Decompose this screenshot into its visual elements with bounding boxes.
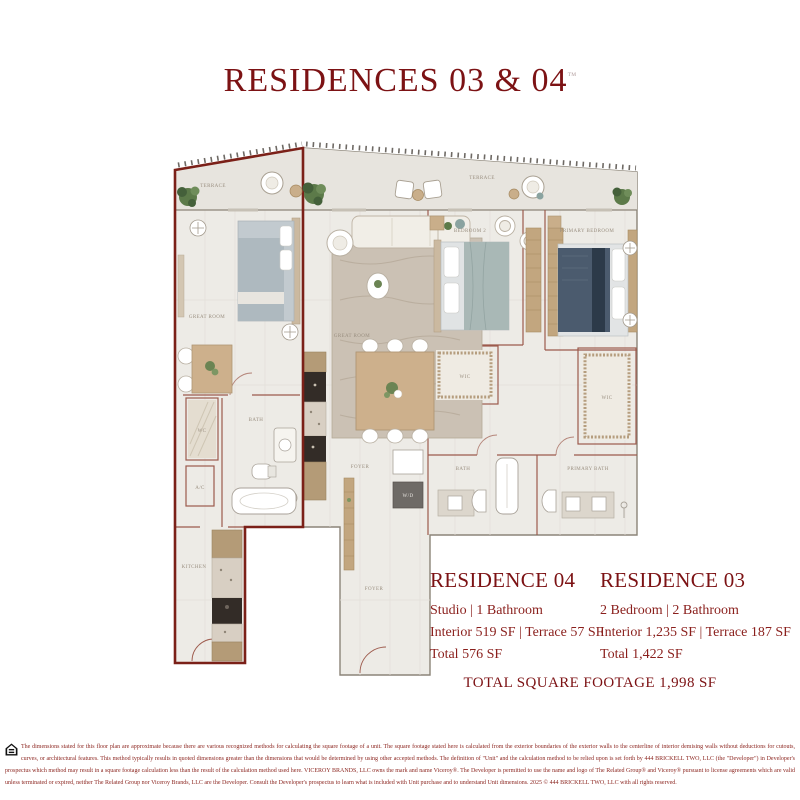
residence-04-area: Interior 519 SF | Terrace 57 SF (430, 622, 600, 644)
residence-03-type: 2 Bedroom | 2 Bathroom (600, 600, 770, 622)
disclaimer: The dimensions stated for this floor pla… (5, 742, 795, 790)
room-label-ac: A/C (195, 486, 205, 491)
disclaimer-text: The dimensions stated for this floor pla… (5, 744, 795, 786)
room-label-foyer-1: FOYER (351, 465, 370, 470)
residence-04-total: Total 576 SF (430, 644, 600, 666)
residence-03-name: RESIDENCE 03 (600, 568, 770, 593)
residence-03-coffee-table (367, 273, 389, 299)
residence-04-console (178, 255, 184, 317)
room-label-terrace-left: TERRACE (200, 184, 226, 189)
room-label-foyer-2: FOYER (365, 587, 384, 592)
room-label-great-room-03: GREAT ROOM (334, 334, 370, 339)
residence-03-info: RESIDENCE 03 2 Bedroom | 2 Bathroom Inte… (600, 568, 770, 666)
room-label-bedroom-2: BEDROOM 2 (454, 229, 486, 234)
room-label-terrace-right: TERRACE (469, 176, 495, 181)
page-title: RESIDENCES 03 & 04™ (0, 62, 800, 100)
residence-04-bed (238, 218, 300, 324)
room-label-great-room-04: GREAT ROOM (189, 315, 225, 320)
residence-04-type: Studio | 1 Bathroom (430, 600, 600, 622)
residence-04-kitchen (212, 530, 242, 661)
room-label-primary-bedroom: PRIMARY BEDROOM (560, 229, 615, 234)
residence-03-area: Interior 1,235 SF | Terrace 187 SF (600, 622, 770, 644)
equal-housing-icon (5, 743, 18, 756)
residence-03-dining-table (356, 339, 434, 443)
room-label-bath-03: BATH (456, 467, 471, 472)
trademark-symbol: ™ (568, 71, 577, 81)
room-label-wc: WC (198, 429, 207, 434)
room-label-primary-bath: PRIMARY BATH (567, 467, 608, 472)
total-square-footage: TOTAL SQUARE FOOTAGE 1,998 SF (415, 675, 765, 692)
residence-03-kitchen (304, 352, 326, 500)
residence-04-name: RESIDENCE 04 (430, 568, 600, 593)
residence-04-info: RESIDENCE 04 Studio | 1 Bathroom Interio… (430, 568, 600, 666)
residence-03-total: Total 1,422 SF (600, 644, 770, 666)
room-label-bath-04: BATH (249, 418, 264, 423)
page-title-text: RESIDENCES 03 & 04 (224, 62, 568, 99)
room-label-kitchen-04: KITCHEN (182, 565, 207, 570)
room-label-wic-1: WIC (460, 375, 471, 380)
room-label-wd: W/D (403, 494, 414, 499)
residence-03-papasan-chair (327, 230, 353, 256)
room-label-wic-2: WIC (602, 396, 613, 401)
floor-plan-page: RESIDENCES 03 & 04™ (0, 0, 800, 800)
